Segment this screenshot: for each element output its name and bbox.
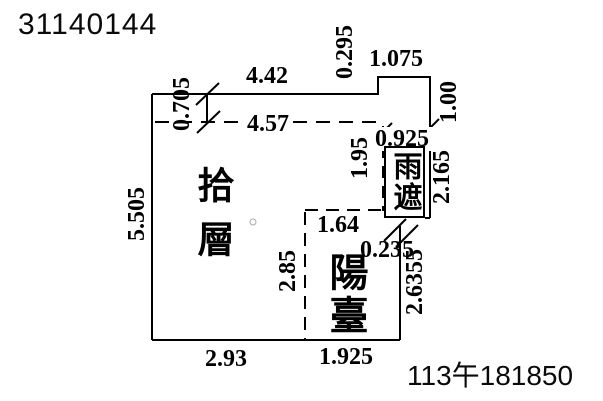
stray-dot (250, 219, 256, 225)
dim-canopy-right-height: 2.165 (430, 150, 454, 204)
dim-top-width: 4.42 (246, 64, 288, 88)
floorplan-lines (0, 0, 603, 401)
room-label-canopy: 雨遮 (390, 151, 419, 213)
dim-top-right-offset: 0.295 (333, 25, 357, 79)
floorplan-page: 31140144 113午181850 4.42 1.075 4.57 0.92… (0, 0, 603, 401)
dim-canopy-top-width: 1.075 (369, 47, 423, 71)
dim-bottom-right-width: 1.925 (319, 345, 373, 369)
dim-canopy-left-height: 1.95 (348, 137, 372, 179)
tick-upper-left-bottom (197, 111, 220, 133)
serial-number: 31140144 (18, 10, 157, 40)
stamp-number: 113午181850 (407, 362, 573, 390)
canopy-label-box: 雨遮 (384, 146, 425, 218)
dim-bottom-left-width: 2.93 (205, 347, 247, 371)
dim-canopy-upper-right-height: 1.00 (437, 81, 461, 123)
dim-upper-left-height: 0.705 (170, 77, 194, 131)
dim-left-side-height: 5.505 (125, 187, 149, 241)
dim-balcony-right-height: 2.6355 (403, 249, 427, 315)
room-label-floor: 拾層 (193, 166, 230, 274)
room-label-balcony: 陽臺 (326, 252, 365, 338)
dim-balcony-left-height: 2.85 (276, 250, 300, 292)
dim-balcony-top-width: 1.64 (313, 213, 363, 237)
dim-interior-top-width: 4.57 (243, 112, 293, 136)
